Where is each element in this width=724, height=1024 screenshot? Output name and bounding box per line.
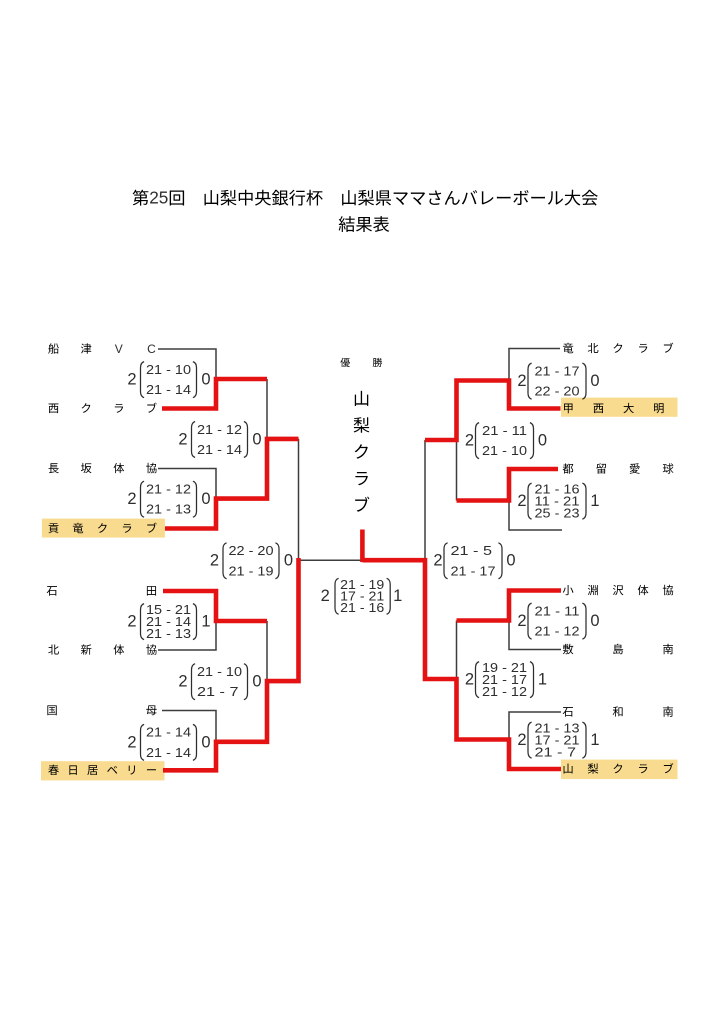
svg-text:0: 0 (201, 371, 210, 389)
svg-text:22 - 20: 22 - 20 (229, 543, 274, 558)
svg-text:0: 0 (538, 432, 547, 450)
svg-text:21 - 7: 21 - 7 (197, 684, 239, 699)
svg-text:21 - 19: 21 - 19 (229, 563, 274, 578)
svg-text:2: 2 (127, 733, 136, 751)
svg-text:2: 2 (210, 552, 219, 570)
svg-text:21 - 12: 21 - 12 (535, 624, 580, 639)
svg-text:0: 0 (590, 612, 599, 630)
svg-text:1: 1 (590, 731, 599, 749)
svg-text:C: C (147, 342, 156, 356)
svg-text:21 - 11: 21 - 11 (535, 603, 580, 618)
svg-text:21 - 10: 21 - 10 (146, 362, 191, 377)
svg-text:1: 1 (393, 587, 402, 605)
svg-text:2: 2 (178, 673, 187, 691)
svg-text:25 - 23: 25 - 23 (535, 506, 580, 521)
svg-text:21 - 17: 21 - 17 (535, 363, 580, 378)
svg-text:0: 0 (590, 372, 599, 390)
svg-text:21 - 16: 21 - 16 (340, 600, 384, 615)
svg-text:21 - 12: 21 - 12 (146, 482, 191, 497)
svg-text:21 - 10: 21 - 10 (482, 443, 527, 458)
svg-text:0: 0 (201, 490, 210, 508)
svg-text:21 - 12: 21 - 12 (197, 422, 242, 437)
svg-text:21 - 11: 21 - 11 (482, 423, 527, 438)
svg-text:21 - 17: 21 - 17 (451, 563, 496, 578)
svg-text:2: 2 (465, 671, 474, 689)
svg-text:2: 2 (127, 613, 136, 631)
svg-text:21 - 12: 21 - 12 (482, 684, 527, 699)
svg-text:2: 2 (517, 612, 526, 630)
svg-text:5: 5 (159, 188, 169, 208)
svg-text:21 - 14: 21 - 14 (146, 725, 191, 740)
svg-text:2: 2 (127, 371, 136, 389)
svg-text:0: 0 (284, 552, 293, 570)
svg-text:21 - 13: 21 - 13 (146, 626, 191, 641)
svg-text:1: 1 (538, 671, 547, 689)
svg-text:0: 0 (252, 430, 261, 448)
svg-text:0: 0 (252, 673, 261, 691)
svg-text:0: 0 (506, 552, 515, 570)
svg-text:21 - 7: 21 - 7 (535, 745, 577, 760)
svg-text:2: 2 (127, 490, 136, 508)
svg-text:21 - 14: 21 - 14 (197, 442, 242, 457)
svg-text:21 - 10: 21 - 10 (197, 664, 242, 679)
svg-text:2: 2 (517, 372, 526, 390)
svg-text:2: 2 (149, 188, 159, 208)
svg-text:2: 2 (465, 432, 474, 450)
svg-text:2: 2 (178, 430, 187, 448)
svg-text:1: 1 (590, 492, 599, 510)
svg-text:21 - 5: 21 - 5 (451, 543, 493, 558)
svg-text:2: 2 (517, 731, 526, 749)
svg-text:1: 1 (201, 613, 210, 631)
svg-text:21 - 14: 21 - 14 (146, 745, 191, 760)
svg-text:21 - 13: 21 - 13 (146, 502, 191, 517)
svg-text:2: 2 (321, 587, 330, 605)
svg-text:V: V (115, 342, 123, 356)
svg-text:0: 0 (201, 733, 210, 751)
svg-text:22 - 20: 22 - 20 (535, 384, 580, 399)
svg-text:21 - 14: 21 - 14 (146, 382, 191, 397)
svg-text:2: 2 (433, 552, 442, 570)
svg-text:2: 2 (517, 492, 526, 510)
